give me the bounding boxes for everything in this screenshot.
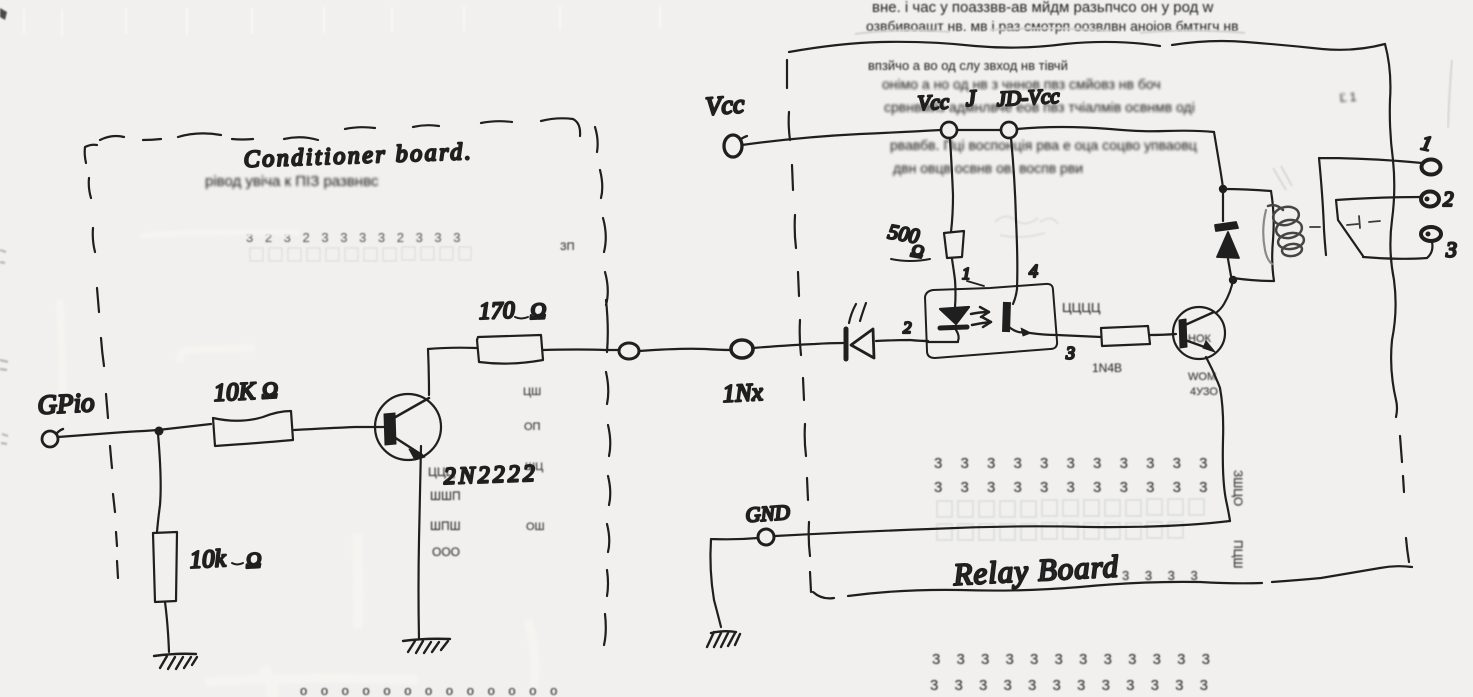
svg-text:вне. і час у поаззвв-ав мйдм р: вне. і час у поаззвв-ав мйдм разьпчсо он… bbox=[872, 0, 1214, 16]
svg-text:3 3 3 3 3 3 3 3 3 3 3 3: 3 3 3 3 3 3 3 3 3 3 3 3 bbox=[932, 651, 1216, 668]
svg-text:3 3 3 3 3 3 3 3 3 3 3: 3 3 3 3 3 3 3 3 3 3 3 bbox=[934, 455, 1214, 472]
svg-text:Vcc: Vcc bbox=[917, 89, 950, 115]
svg-text:ЦЦЦЦ: ЦЦЦЦ bbox=[1062, 300, 1101, 315]
svg-text:ЗП: ЗП bbox=[560, 241, 575, 253]
svg-text:3 3 3 3 3 3 3 3 3 3 3 3: 3 3 3 3 3 3 3 3 3 3 3 3 bbox=[930, 677, 1214, 694]
svg-text:ООО: ООО bbox=[432, 545, 460, 559]
svg-text:2: 2 bbox=[903, 318, 912, 337]
svg-text:ШПШ: ШПШ bbox=[430, 519, 461, 533]
svg-text:2: 2 bbox=[1443, 187, 1454, 211]
svg-text:3: 3 bbox=[1445, 237, 1457, 262]
svg-text:ЦШ: ЦШ bbox=[523, 386, 541, 398]
svg-text:WОМ: WОМ bbox=[1188, 371, 1216, 383]
svg-text:3 3 3 3: 3 3 3 3 bbox=[1122, 568, 1204, 583]
svg-text:1: 1 bbox=[962, 264, 971, 283]
svg-text:JD-Vcc: JD-Vcc bbox=[996, 84, 1061, 111]
svg-text:о о о о о о о о о о о о о: о о о о о о о о о о о о о bbox=[300, 683, 562, 697]
svg-text:ЗШЦО: ЗШЦО bbox=[1231, 470, 1245, 506]
svg-text:2N2222: 2N2222 bbox=[443, 461, 538, 490]
svg-text:ОШ: ОШ bbox=[526, 521, 545, 533]
svg-text:рвавбв. Пці воспонція рва е оц: рвавбв. Пці воспонція рва е оца соцво уп… bbox=[890, 137, 1197, 153]
svg-text:GPio: GPio bbox=[37, 387, 95, 420]
svg-text:10K Ω: 10K Ω bbox=[213, 377, 279, 407]
svg-text:ШШП: ШШП bbox=[430, 489, 461, 503]
svg-text:Ľ 1: Ľ 1 bbox=[1339, 90, 1357, 105]
svg-text:двн овцв освнв ов. воспв рви: двн овцв освнв ов. воспв рви bbox=[893, 160, 1083, 176]
svg-text:рівод увіча к ПІЗ развнвс: рівод увіча к ПІЗ развнвс bbox=[205, 173, 379, 190]
svg-text:3 3 3 3 3 3 3 3 3 3 3: 3 3 3 3 3 3 3 3 3 3 3 bbox=[934, 479, 1214, 496]
svg-text:озвбивоашт нв. мв і раз смотрп: озвбивоашт нв. мв і раз смотрп оозвлвн а… bbox=[866, 18, 1239, 34]
svg-text:ПЦШ: ПЦШ bbox=[1231, 540, 1245, 569]
svg-text:впзйчо а во од слу звход нв ті: впзйчо а во од слу звход нв тівчй bbox=[868, 58, 1068, 73]
svg-text:1Nx: 1Nx bbox=[722, 379, 764, 408]
svg-text:ОП: ОП bbox=[524, 421, 541, 433]
svg-text:4УЗО: 4УЗО bbox=[1190, 386, 1218, 398]
svg-text:3: 3 bbox=[1065, 343, 1075, 363]
svg-text:4: 4 bbox=[1029, 261, 1038, 281]
svg-text:170: 170 bbox=[478, 298, 515, 325]
svg-text:Ω: Ω bbox=[529, 298, 547, 324]
svg-text:GND: GND bbox=[745, 500, 791, 527]
svg-text:Vcc: Vcc bbox=[704, 89, 745, 121]
svg-text:1N4В: 1N4В bbox=[1092, 361, 1122, 375]
svg-text:10k: 10k bbox=[189, 545, 227, 574]
svg-text:Ω: Ω bbox=[245, 547, 262, 573]
